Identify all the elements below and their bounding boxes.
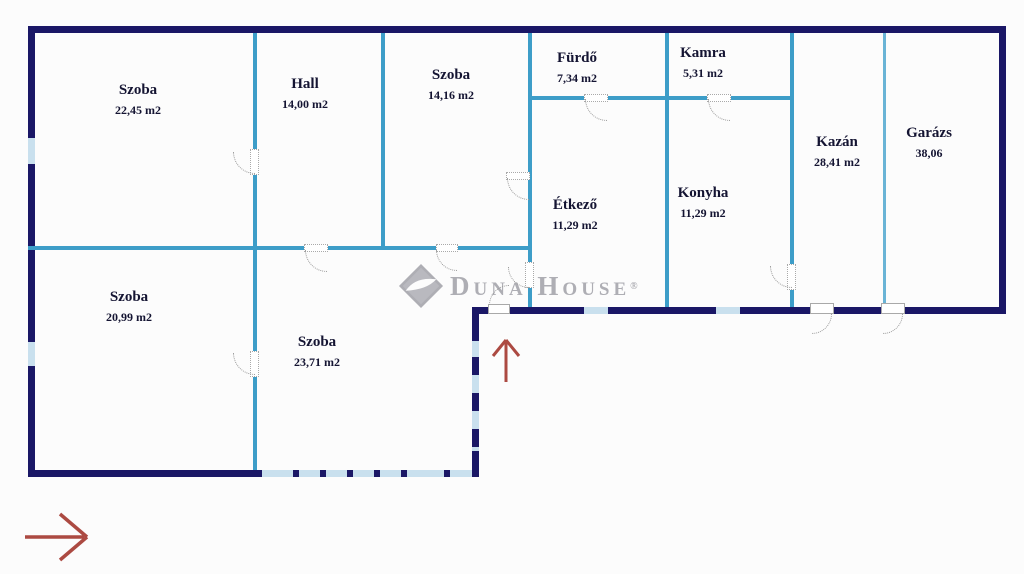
window-bottom-etkezo [584, 307, 608, 314]
step-wall-dash [472, 429, 479, 447]
room-label-szoba-2245: Szoba 22,45 m2 [115, 83, 161, 116]
door-arc-konyha-kazan [770, 266, 792, 288]
door-arc-furdo [585, 99, 607, 121]
step-wall-dash [472, 357, 479, 375]
room-area: 7,34 m2 [557, 72, 597, 84]
room-name: Szoba [294, 335, 340, 350]
room-area: 38,06 [906, 147, 952, 159]
room-name: Hall [282, 77, 328, 92]
window-bottom-konyha [716, 307, 740, 314]
room-label-garazs: Garázs 38,06 [906, 126, 952, 159]
room-name: Kazán [814, 135, 860, 150]
room-area: 20,99 m2 [106, 311, 152, 323]
glazed-wall-tick [444, 470, 450, 477]
room-name: Konyha [678, 186, 729, 201]
room-label-furdo: Fürdő 7,34 m2 [557, 51, 597, 84]
entrance-arrow-icon [486, 334, 526, 388]
wall-step-corner [472, 451, 479, 477]
room-label-hall: Hall 14,00 m2 [282, 77, 328, 110]
room-area: 11,29 m2 [552, 219, 597, 231]
exterior-door-leaf [881, 303, 905, 314]
dunahouse-logo-icon [398, 263, 444, 309]
window-left-lower [28, 342, 35, 366]
room-area: 11,29 m2 [678, 207, 729, 219]
room-area: 14,00 m2 [282, 98, 328, 110]
room-area: 28,41 m2 [814, 156, 860, 168]
door-arc-kamra [708, 99, 730, 121]
entrance-door-leaf [488, 304, 510, 314]
wall-szoba1-hall [253, 33, 257, 246]
door-arc-szoba2-etkezo [507, 178, 529, 200]
wall-hall-szoba2 [381, 33, 385, 246]
room-name: Szoba [428, 68, 474, 83]
watermark-brand-text: Duna House [450, 273, 630, 300]
room-label-kazan: Kazán 28,41 m2 [814, 135, 860, 168]
room-name: Étkező [552, 198, 597, 213]
wall-outer-right [999, 26, 1006, 314]
glazed-wall-tick [320, 470, 326, 477]
wall-outer-left [28, 26, 35, 477]
room-area: 22,45 m2 [115, 104, 161, 116]
room-label-szoba-2371: Szoba 23,71 m2 [294, 335, 340, 368]
room-label-etkezo: Étkező 11,29 m2 [552, 198, 597, 231]
room-label-kamra: Kamra 5,31 m2 [680, 46, 726, 79]
door-arc-hall-szoba4 [305, 250, 327, 272]
exterior-door-arc-kazan [812, 314, 832, 334]
registered-mark: ® [630, 281, 637, 292]
step-wall-dash [472, 393, 479, 411]
wall-outer-top [28, 26, 1006, 33]
exterior-door-arc-garazs [883, 314, 903, 334]
door-arc-szoba1-hall [233, 152, 255, 174]
glazed-wall-tick [374, 470, 380, 477]
room-label-konyha: Konyha 11,29 m2 [678, 186, 729, 219]
wall-outer-bottom-left [28, 470, 262, 477]
wall-furdo-kamra-bottom [528, 96, 794, 100]
room-area: 23,71 m2 [294, 356, 340, 368]
step-wall-dash [472, 311, 479, 341]
wall-kazan-garazs [883, 33, 886, 307]
room-name: Garázs [906, 126, 952, 141]
wall-etkezo-konyha [665, 33, 669, 307]
room-label-szoba-1416: Szoba 14,16 m2 [428, 68, 474, 101]
glazed-wall-tick [347, 470, 353, 477]
floor-plan: Duna House ® [0, 0, 1024, 574]
door-arc-szoba3 [233, 353, 255, 375]
glazed-wall-tick [401, 470, 407, 477]
orientation-arrow-icon [20, 508, 96, 566]
room-name: Szoba [106, 290, 152, 305]
glazed-wall-tick [293, 470, 299, 477]
exterior-door-leaf [810, 303, 834, 314]
room-area: 5,31 m2 [680, 67, 726, 79]
room-name: Fürdő [557, 51, 597, 66]
room-name: Kamra [680, 46, 726, 61]
room-name: Szoba [115, 83, 161, 98]
room-label-szoba-2099: Szoba 20,99 m2 [106, 290, 152, 323]
window-left-upper [28, 138, 35, 164]
room-area: 14,16 m2 [428, 89, 474, 101]
